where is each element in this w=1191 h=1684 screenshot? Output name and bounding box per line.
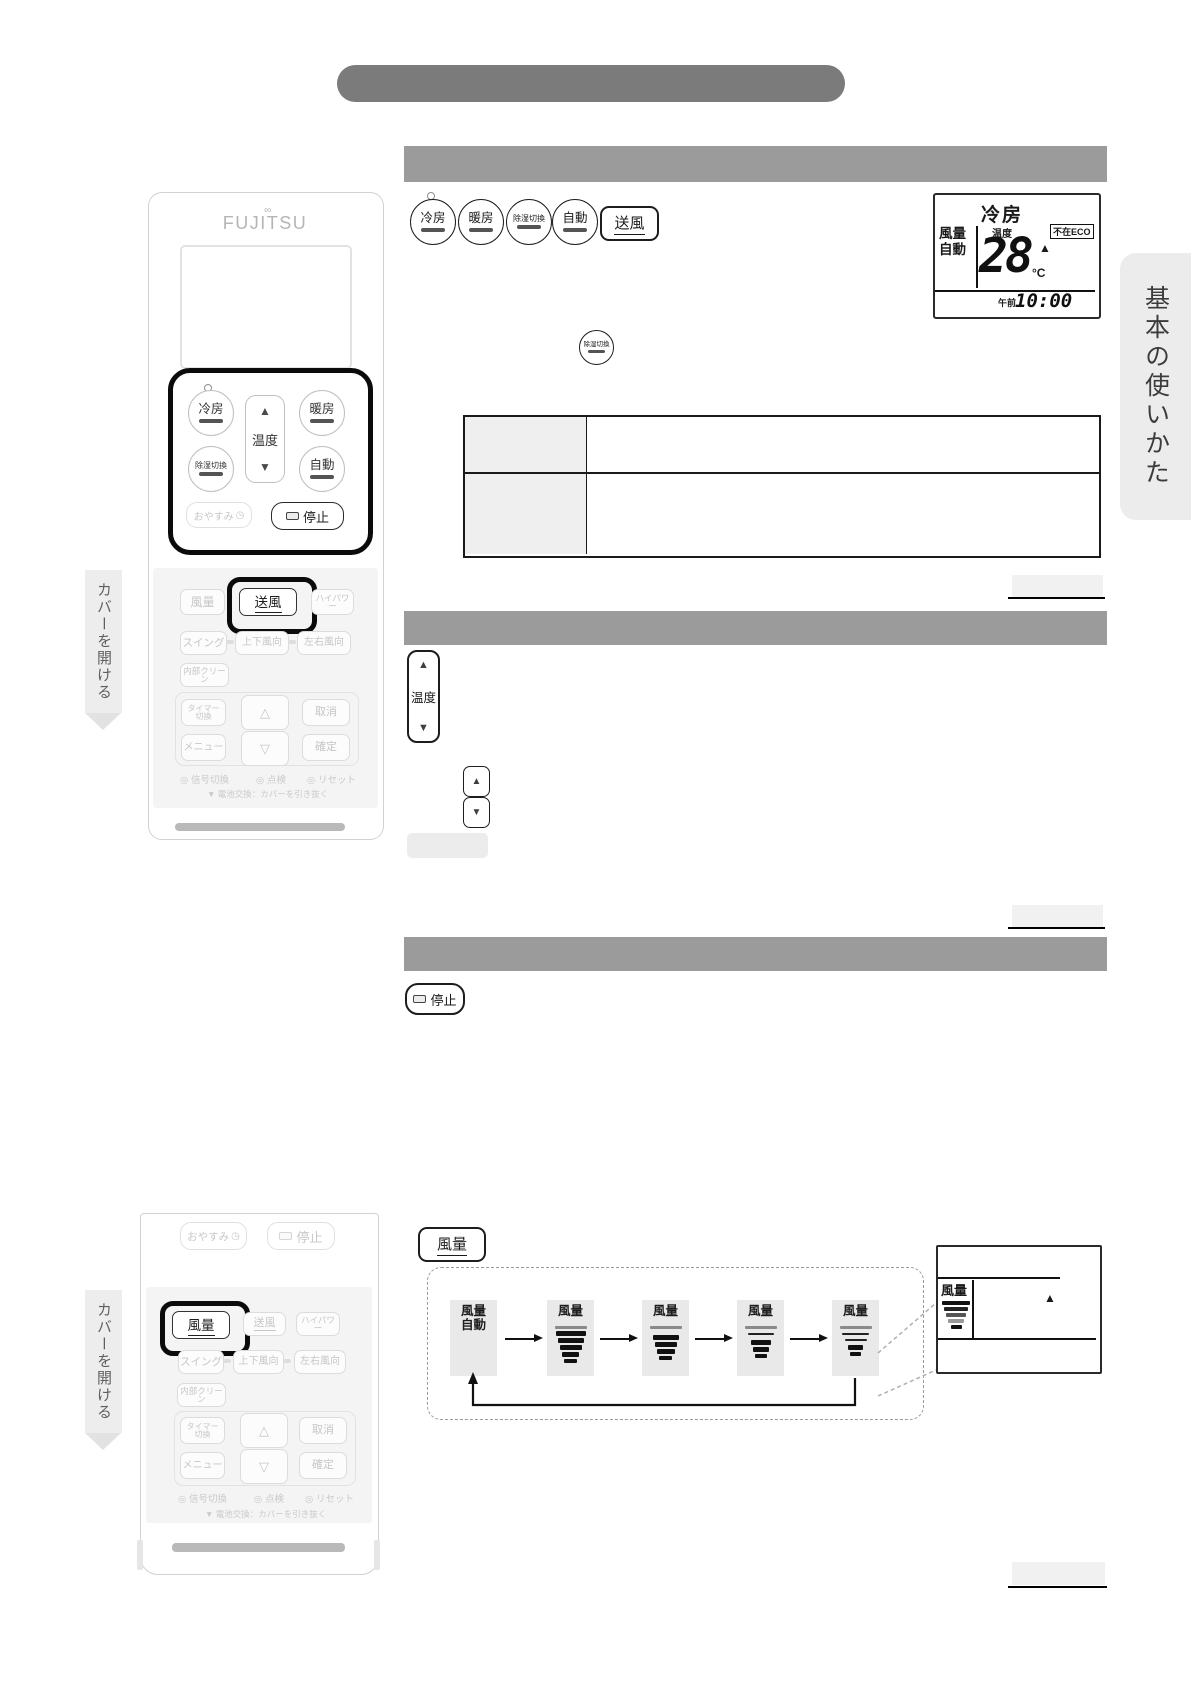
remote2-clean-label: 内部クリーン [178,1387,225,1404]
lcd-ampm: 午前 [998,296,1016,309]
dehumidify-inline-button: 除湿切換 [579,330,614,365]
section-header-1 [404,146,1107,182]
remote2-cancel-button: 取消 [299,1417,347,1444]
connector-dash [226,640,234,644]
battery-marker-icon: ▼ [205,1509,213,1519]
temp-up-marker-icon: ▲ [1039,241,1051,255]
page-ref-box-1 [1012,575,1103,597]
page-title-bar [337,65,845,102]
fan-state-low: 風量 [737,1300,784,1376]
button-underbar [563,228,587,232]
button-underbar [421,228,445,232]
lcd-fan-auto: 風量 自動 [939,226,966,257]
table-header-cell-1 [465,417,587,474]
remote2-clean-button: 内部クリーン [177,1383,226,1407]
fujitsu-logo: FUJITSU∞ [148,213,382,234]
remote2-updown-label: 上下風向 [239,1357,279,1367]
remote-leftright-button-1: 左右風向 [297,631,351,655]
brand-text: FUJITSU [223,213,308,233]
remote-reset-label-1: ◎ リセット [307,772,356,786]
lcd-display-fan: 風量 ▲ [936,1245,1102,1374]
remote2-fan-button-active: 風量 [172,1311,230,1339]
remote-updown-button-1: 上下風向 [235,631,289,655]
battery-cover-slider-2 [172,1543,345,1552]
connector-dash [288,640,296,644]
open-cover-label-2: カバーを開ける [93,1302,114,1421]
page-ref-underline-1 [1008,597,1105,599]
remote-swing-label-1: スイング [183,638,225,649]
fan-state-label: 風量 [843,1304,868,1318]
remote-heat-label: 暖房 [309,403,334,416]
bullet-icon: ◎ [178,1494,186,1505]
fan-state-label: 風量 [748,1304,773,1318]
remote2-reset-label: ◎ リセット [305,1491,354,1505]
temp-up-icon: ▲ [418,659,429,671]
bullet-icon: ◎ [254,1494,262,1505]
remote2-sleep-label: おやすみ [187,1229,229,1244]
cool-mode-button: 冷房 [410,199,456,245]
remote2-stop-label: 停止 [296,1227,322,1246]
manual-page: 基本の使いかた 冷房 暖房 除湿切換 自動 送風 冷房 風量 自動 温度 28 … [0,0,1191,1684]
remote-sleep-button: おやすみ ◷ [186,502,252,528]
power-bar-icon [413,995,426,1003]
remote-cancel-label-1: 取消 [315,707,337,718]
button-underbar [588,350,605,353]
up-outline-icon: △ [259,1424,269,1437]
remote2-cancel-label: 取消 [312,1425,334,1436]
remote-fan-label-1: 風量 [190,596,214,608]
page-ref-underline-3 [1008,1586,1107,1588]
remote-menu-label-1: メニュー [184,743,224,753]
lcd-fan-label: 風量 [941,1280,967,1299]
page-ref-underline-2 [1008,927,1105,929]
remote2-signal-label: ◎ 信号切換 [178,1491,227,1505]
remote2-menu-label: メニュー [183,1461,223,1471]
lcd-time: 10:00 [1015,290,1072,312]
remote2-sleep-button: おやすみ ◷ [180,1222,247,1250]
fan-state-auto: 風量自動 [450,1300,497,1376]
remote2-updown-button: 上下風向 [233,1350,284,1374]
remote2-vent-button: 送風 [243,1312,286,1336]
down-outline-icon: ▽ [259,1460,269,1473]
lcd-eco-badge: 不在ECO [1050,224,1094,239]
fan-state-label: 風量 [558,1304,583,1318]
open-cover-ribbon-2: カバーを開ける [85,1290,122,1433]
clock-icon: ◷ [231,1231,240,1242]
button-underbar [517,225,541,229]
remote2-confirm-button: 確定 [299,1452,347,1479]
open-cover-arrow-2 [85,1433,121,1450]
remote-temp-down-icon: ▼ [259,460,271,474]
remote2-hipower-button: ハイパワー [296,1312,340,1336]
remote-heat-button: 暖房 [299,390,345,436]
remote-signal-label-1: ◎ 信号切換 [180,772,229,786]
power-bar-icon [286,512,299,520]
remote-display-window [180,245,352,369]
up-icon: ▲ [472,776,482,787]
remote-cool-button: 冷房 [188,390,234,436]
remote-battery-note-1: ▼ 電池交換：カバーを引き抜く [207,788,328,800]
remote-up-arrow-button-1: △ [241,695,289,730]
remote-cancel-button-1: 取消 [302,699,350,726]
lcd-fan-up-marker-icon: ▲ [1044,1291,1056,1305]
table-body-cell-1 [587,417,1099,474]
open-cover-label-1: カバーを開ける [93,582,114,701]
bullet-icon: ◎ [307,775,315,786]
open-cover-ribbon-1: カバーを開ける [85,570,122,713]
stop-button-illustration: 停止 [405,983,465,1015]
table-header-cell-2 [465,474,587,554]
lcd-mode: 冷房 [981,200,1023,227]
remote2-leftright-label: 左右風向 [300,1357,340,1367]
remote-clean-label-1: 内部クリーン [181,667,228,684]
timer-label-1: タイマー切換 [188,705,220,721]
stop-label: 停止 [430,990,456,1009]
fan-bars-icon-high [555,1324,587,1363]
clock-icon: ◷ [236,510,245,521]
temp-up-small-button: ▲ [463,766,490,797]
battery-cover-slider-1 [175,823,345,831]
remote-updown-label-1: 上下風向 [242,638,282,648]
remote2-check-label: ◎ 点検 [254,1491,284,1505]
power-bar-icon [279,1232,292,1240]
bullet-icon: ◎ [305,1494,313,1505]
remote-temp-label: 温度 [252,430,278,449]
fan-state-auto-label: 風量自動 [461,1304,486,1333]
section-header-3 [404,937,1107,971]
note-box [407,833,488,858]
remote2-timer-button: タイマー切換 [180,1417,225,1444]
battery-marker-icon: ▼ [207,789,215,799]
auto-mode-button: 自動 [552,199,598,245]
fan-bars-icon-low [745,1324,777,1358]
arrow-right-icon [505,1338,535,1340]
open-cover-arrow-1 [85,713,121,730]
page-ref-box-3 [1012,1562,1105,1585]
lcd-temp-value: 28 [979,228,1031,284]
down-outline-icon: ▽ [260,742,270,755]
remote-stop-label: 停止 [303,507,329,526]
remote-temp-rocker: ▲ 温度 ▼ [245,395,285,483]
chapter-tab-label: 基本の使いかた [1138,285,1174,488]
lcd-vertical-divider [976,226,978,288]
fan-state-medium: 風量 [642,1300,689,1376]
remote-fan-button-1: 風量 [180,589,225,615]
remote-auto-button: 自動 [299,446,345,492]
remote-menu-button-1: メニュー [181,734,226,761]
grip-notch-left [137,1540,143,1570]
page-ref-box-2 [1012,905,1103,927]
bullet-icon: ◎ [180,775,188,786]
fan-button-illustration: 風量 [418,1227,486,1262]
arrow-right-icon [600,1338,630,1340]
remote-confirm-button-1: 確定 [302,734,350,761]
cool-mode-label: 冷房 [420,212,445,225]
chapter-tab: 基本の使いかた [1120,253,1191,520]
lcd-display-main: 冷房 風量 自動 温度 28 ▲ 不在ECO °C 午前 10:00 [933,193,1101,319]
heat-mode-button: 暖房 [458,199,504,245]
button-underbar [469,228,493,232]
temp-rocker-illustration: ▲ 温度 ▼ [407,650,440,743]
remote-sleep-label: おやすみ [194,508,234,523]
remote2-swing-label: スイング [180,1357,222,1368]
remote2-leftright-button: 左右風向 [294,1350,346,1374]
remote2-up-arrow-button: △ [240,1413,288,1448]
lcd-fan-topline [938,1277,1060,1279]
remote-vent-button-active: 送風 [239,588,297,616]
remote-hipower-button-1: ハイパワー [311,589,354,615]
remote2-confirm-label: 確定 [312,1460,334,1471]
fan-state-label: 風量 [653,1304,678,1318]
down-icon: ▼ [472,807,482,818]
vent-mode-label: 送風 [614,212,644,235]
auto-mode-label: 自動 [562,212,587,225]
info-table [463,415,1101,558]
lcd-unit: °C [1032,266,1045,280]
remote-leftright-label-1: 左右風向 [304,638,344,648]
temp-down-icon: ▼ [418,722,429,734]
bullet-icon: ◎ [256,775,264,786]
table-body-cell-2 [587,474,1099,554]
lcd-fan-hline [938,1338,1096,1340]
connector-dash [223,1359,231,1363]
up-outline-icon: △ [260,706,270,719]
remote2-vent-label: 送風 [254,1318,276,1331]
remote2-stop-button: 停止 [267,1222,335,1250]
remote2-swing-button: スイング [178,1350,224,1374]
button-underbar [310,475,334,479]
remote-stop-button: 停止 [271,502,344,530]
remote-cool-label: 冷房 [198,403,223,416]
dehumidify-mode-button: 除湿切換 [506,199,552,245]
fan-state-high: 風量 [547,1300,594,1376]
arrow-right-icon [695,1338,725,1340]
remote2-menu-button: メニュー [180,1452,225,1479]
remote-auto-label: 自動 [309,459,334,472]
remote-vent-label: 送風 [255,591,282,613]
remote-hipower-label-1: ハイパワー [312,594,353,611]
remote-swing-button-1: スイング [180,631,227,655]
remote-down-arrow-button-1: ▽ [241,731,289,766]
remote-timer-button-1: タイマー切換 [181,699,226,726]
lcd-fan-vdivider [972,1280,974,1339]
callout-dashed-lines [872,1293,942,1403]
dehumidify-inline-label: 除湿切換 [584,342,610,349]
lcd-fan-line2: 自動 [939,242,966,257]
section-header-2 [404,611,1107,645]
remote-check-label-1: ◎ 点検 [256,772,286,786]
button-underbar [199,419,223,423]
temp-rocker-label: 温度 [411,687,436,706]
remote2-down-arrow-button: ▽ [240,1449,288,1484]
remote-clean-button-1: 内部クリーン [180,663,229,687]
heat-mode-label: 暖房 [468,212,493,225]
dehumidify-mode-label: 除湿切換 [513,215,545,223]
remote2-battery-note: ▼ 電池交換：カバーを引き抜く [205,1508,326,1520]
button-underbar [199,472,223,476]
button-underbar [310,419,334,423]
remote-confirm-label-1: 確定 [315,742,337,753]
cycle-return-arrow [460,1368,880,1423]
remote2-hipower-label: ハイパワー [297,1316,339,1333]
arrow-right-icon [790,1338,820,1340]
lcd-fan-line1: 風量 [939,226,966,241]
fan-bars-icon-quiet [840,1324,872,1356]
grip-notch-right [374,1540,380,1570]
logo-accent-icon: ∞ [264,205,273,216]
fan-bars-icon-medium [650,1324,682,1360]
temp-down-small-button: ▼ [463,797,490,828]
remote-dehumidify-label: 除湿切換 [195,462,227,470]
connector-dash [283,1359,291,1363]
remote-temp-up-icon: ▲ [259,404,271,418]
timer-label-2: タイマー切換 [187,1423,219,1439]
lcd-fan-bars-icon [942,1299,970,1329]
remote-dehumidify-button: 除湿切換 [188,446,234,492]
remote2-fan-label: 風量 [188,1314,215,1336]
fan-button-label: 風量 [437,1233,467,1256]
vent-mode-button: 送風 [600,206,659,241]
